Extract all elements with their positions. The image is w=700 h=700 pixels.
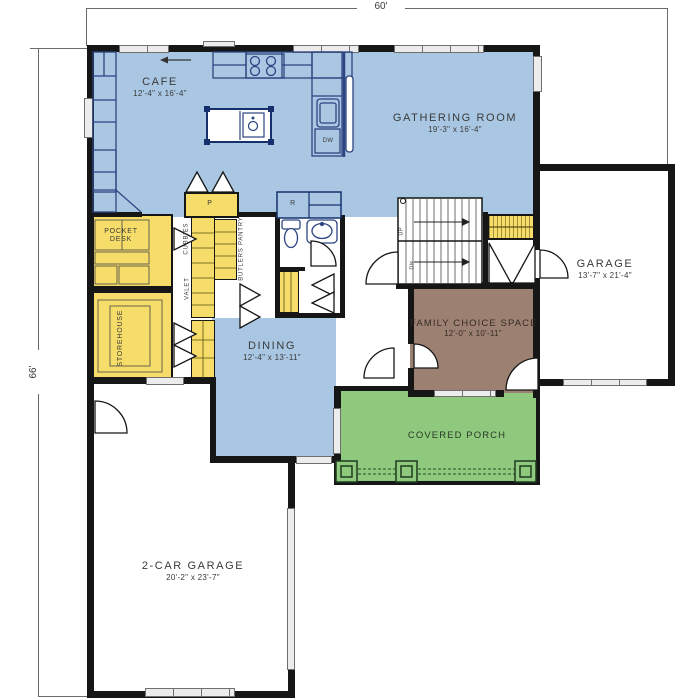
powder-room-fixtures <box>282 220 337 248</box>
dining-name: DINING <box>212 340 332 353</box>
floor-plan: 60' 66' <box>0 0 700 700</box>
storehouse-label: STOREHOUSE <box>117 299 125 377</box>
coat-closet-doors <box>489 243 511 283</box>
refrigerator-letter: R <box>285 200 301 208</box>
storehouse-door <box>174 323 196 345</box>
cafe-dims: 12'-4" x 16'-4" <box>100 89 220 99</box>
stairs-down-label: DN <box>410 255 417 275</box>
cafe-name: CAFE <box>100 76 220 89</box>
family-space-door <box>414 344 438 368</box>
pocket-desk-line2: DESK <box>92 236 150 244</box>
pantry-bifold-door <box>186 172 208 192</box>
dining-label: DINING 12'-4" x 13'-11" <box>212 340 332 363</box>
pocket-desk-line1: POCKET <box>92 228 150 236</box>
stair-hall-door <box>366 252 398 284</box>
garage2-side-door <box>95 401 127 433</box>
powder-closet-door <box>312 274 334 296</box>
valet-label: VALET <box>184 271 191 307</box>
stairs-up-label: UP <box>399 221 406 241</box>
gathering-dims: 19'-3" x 16'-4" <box>375 125 535 135</box>
hall-door <box>364 348 394 378</box>
garage-label: GARAGE 13'-7" x 21'-4" <box>555 258 655 281</box>
pantry-letter: P <box>196 200 224 208</box>
garage-name: GARAGE <box>555 258 655 271</box>
two-car-garage-label: 2-CAR GARAGE 20'-2" x 23'-7" <box>126 560 260 583</box>
dishwasher-letters: DW <box>316 138 340 145</box>
two-car-garage-dims: 20'-2" x 23'-7" <box>126 573 260 583</box>
gathering-name: GATHERING ROOM <box>375 112 535 125</box>
kitchen-island <box>204 106 274 145</box>
cafe-label: CAFE 12'-4" x 16'-4" <box>100 76 220 99</box>
powder-door <box>311 241 336 266</box>
gathering-label: GATHERING ROOM 19'-3" x 16'-4" <box>375 112 535 135</box>
garage-dims: 13'-7" x 21'-4" <box>555 271 655 281</box>
family-label: FAMILY CHOICE SPACE 12'-0" x 10'-11" <box>410 318 536 339</box>
pocket-desk-label: POCKET DESK <box>92 228 150 245</box>
porch-details <box>336 461 536 482</box>
covered-porch-label: COVERED PORCH <box>396 430 518 441</box>
toilet-icon <box>282 220 300 229</box>
family-dims: 12'-0" x 10'-11" <box>410 329 536 339</box>
family-name: FAMILY CHOICE SPACE <box>410 318 536 329</box>
fixture-linework <box>0 0 700 700</box>
porch-door <box>506 358 538 390</box>
cubbies-label: CUBBIES <box>183 216 190 262</box>
entry-arrow-icon <box>160 57 191 64</box>
butlers-dining-door <box>240 284 260 306</box>
dining-dims: 12'-4" x 13'-11" <box>212 353 332 363</box>
two-car-garage-name: 2-CAR GARAGE <box>126 560 260 573</box>
butlers-pantry-label: BUTLERS PANTRY <box>238 213 245 285</box>
